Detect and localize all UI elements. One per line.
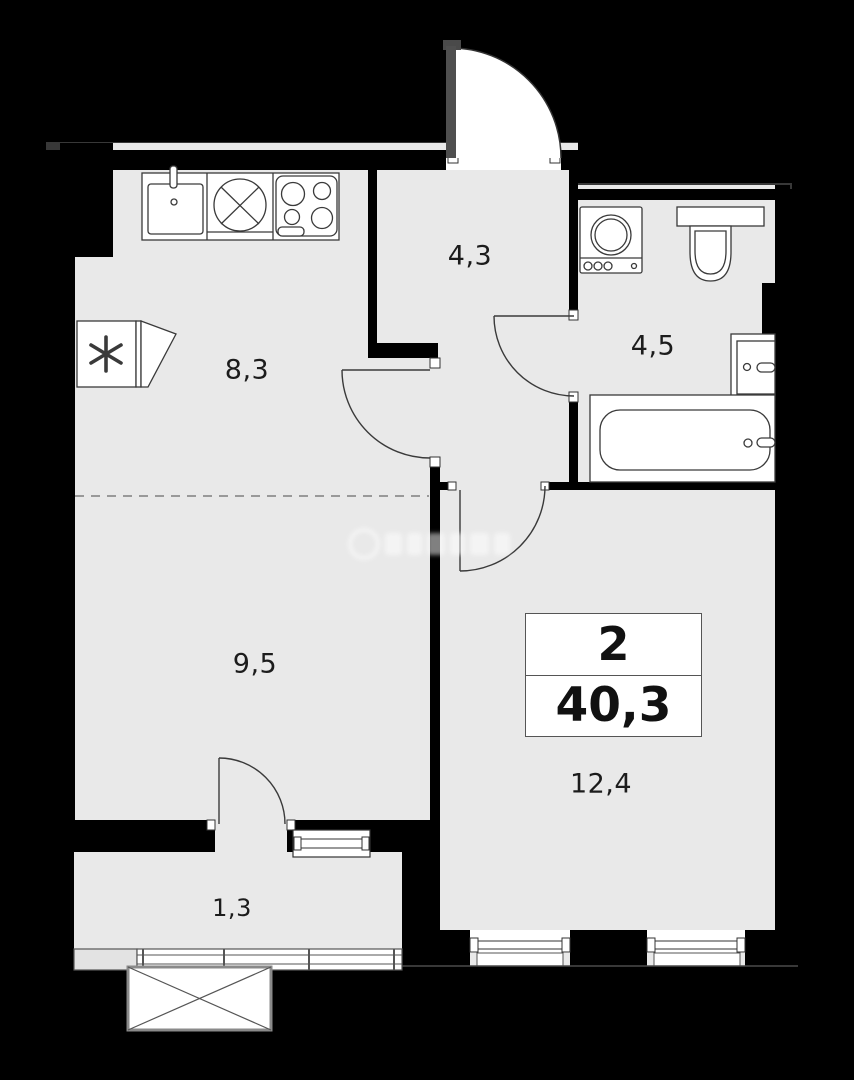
rooms-count: 2 [526,614,701,676]
wall-bedroom-top-b [549,482,775,490]
room-label-hallway: 4,3 [448,241,492,272]
wall-right [775,185,790,966]
window-sill [477,953,563,966]
wall-bedroom-bottom-a [440,930,470,966]
wall-bathroom-top [578,189,790,200]
window-bedroom-2 [647,930,745,966]
bathroom-sink-icon [731,334,775,400]
x-crossed-box [128,967,271,1030]
room-label-living-room: 9,5 [233,649,277,680]
wall-central [430,467,440,820]
entrance-door [443,40,561,158]
window-bedroom-1 [470,930,570,966]
wall-bathroom-left-a [569,170,578,310]
total-area: 40,3 [526,676,701,737]
wall-living-bottom-a [60,820,207,852]
wall-kitchen-notch [60,143,113,257]
wall-above-balcony-window [295,820,370,830]
wall-living-bottom-b [370,820,440,852]
room-label-bedroom: 12,4 [570,769,632,800]
wall-bathroom-duct [762,283,775,335]
bathroom-washing-machine-icon [580,207,642,273]
summary-box: 2 40,3 [525,613,702,737]
room-label-bathroom: 4,5 [631,331,675,362]
window-living-balcony [293,830,370,857]
wall-kitchen-hall [368,150,377,347]
bathtub-icon [590,395,775,482]
floor-plan-drawing [0,0,854,1080]
room-label-balcony: 1,3 [212,894,252,922]
wall-bedroom-bottom-c [745,930,775,966]
window-sill [654,953,740,966]
wall-hall-stub [368,343,438,358]
stove-icon [276,176,337,236]
kitchen-counter [142,166,339,240]
wall-balcony-bedroom [402,852,440,966]
wall-bathroom-left-b [569,402,578,482]
wall-bedroom-bottom-b [570,930,647,966]
floor-plan-image: 8,3 4,3 4,5 9,5 12,4 1,3 2 40,3 [0,0,854,1080]
room-label-kitchen: 8,3 [225,355,269,386]
entrance-door-leaf [446,46,456,158]
